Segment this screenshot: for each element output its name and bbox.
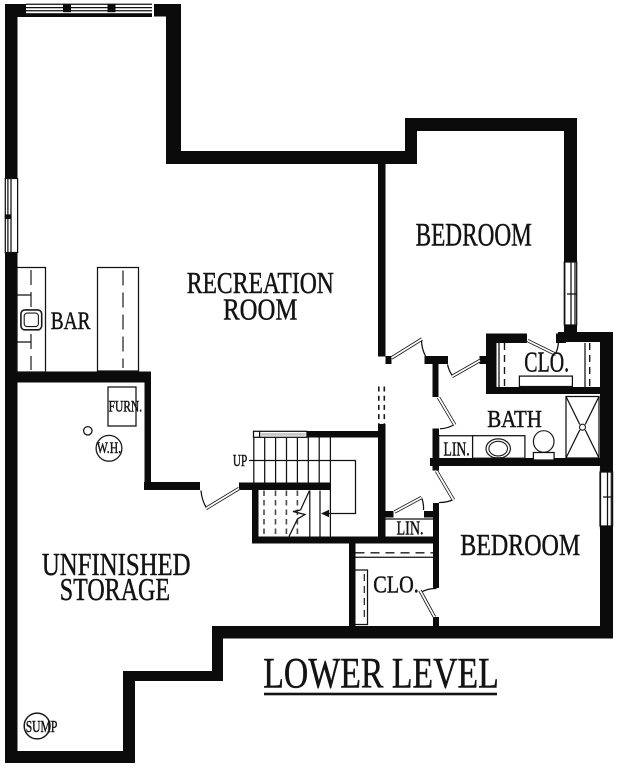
svg-text:ROOM: ROOM xyxy=(223,292,297,326)
svg-text:LIN.: LIN. xyxy=(444,438,470,460)
svg-text:CLO.: CLO. xyxy=(373,571,419,598)
svg-text:UP: UP xyxy=(233,451,247,470)
svg-text:BEDROOM: BEDROOM xyxy=(416,217,532,253)
svg-text:BATH: BATH xyxy=(487,406,542,433)
svg-text:STORAGE: STORAGE xyxy=(60,572,170,607)
svg-text:CLO.: CLO. xyxy=(524,347,569,378)
svg-text:FURN.: FURN. xyxy=(109,399,143,416)
svg-text:BAR: BAR xyxy=(51,307,91,335)
svg-text:LOWER LEVEL: LOWER LEVEL xyxy=(263,650,499,697)
svg-text:LIN.: LIN. xyxy=(397,517,424,539)
svg-text:SUMP: SUMP xyxy=(26,717,58,736)
svg-text:W.H.: W.H. xyxy=(97,440,121,457)
svg-text:BEDROOM: BEDROOM xyxy=(460,527,580,562)
